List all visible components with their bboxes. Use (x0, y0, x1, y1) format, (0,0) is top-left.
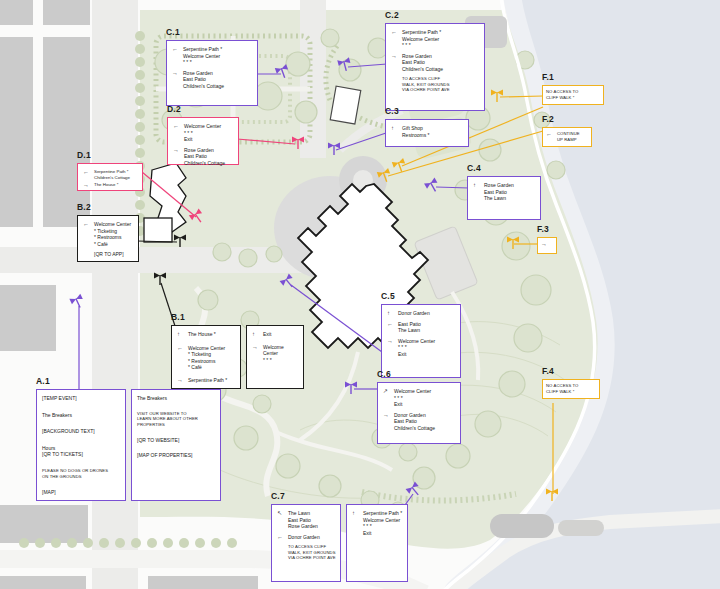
destination-text: The House * (94, 182, 118, 189)
sign-note: NO ACCESS TO CLIFF WALK * (546, 89, 600, 100)
callout-box: ←Welcome Center * * * Exit →Rose Garden … (167, 117, 239, 165)
sign-direction: →Rose Garden East Patio Children's Cotta… (173, 147, 234, 167)
callout-d1: D.1 ←Serpentine Path * Children's Cottag… (77, 150, 143, 191)
sign-note: TO ACCESS CLIFF WALK, EXIT GROUNDS VIA O… (277, 544, 336, 561)
destination-text: Rose Garden East Patio The Lawn (484, 182, 514, 202)
sign-direction: ↑Gift Shop Restrooms * (391, 125, 464, 138)
callout-d2: D.2 ←Welcome Center * * * Exit →Rose Gar… (167, 104, 239, 165)
left-arrow-icon: ← (391, 29, 399, 49)
right-arrow-icon: → (83, 182, 91, 189)
destination-text: Serpentine Path * Welcome Center * * * E… (363, 510, 402, 536)
property-name: The Breakers (42, 412, 121, 419)
parking-structure (490, 514, 554, 538)
callout-c1: C.1 ←Serpentine Path * Welcome Center * … (166, 27, 258, 106)
sign-direction: → (541, 241, 553, 248)
destination-text: Welcome Center * Ticketing * Restrooms *… (94, 221, 131, 247)
callout-box: ↗Welcome Center * * * Exit →Donor Garden… (377, 382, 461, 444)
destination-text: Exit (263, 331, 271, 338)
background-text-slot: [BACKGROUND TEXT] (42, 428, 121, 435)
right-arrow-icon: → (252, 344, 260, 364)
callout-c4: C.4 ↑Rose Garden East Patio The Lawn (467, 163, 541, 220)
destination-text: Rose Garden East Patio Children's Cottag… (184, 147, 225, 167)
up-arrow-icon: ↑ (352, 510, 360, 536)
property-name: The Breakers (137, 395, 216, 402)
sign-direction: ↑Rose Garden East Patio The Lawn (473, 182, 536, 202)
site-map-page: C.1 ←Serpentine Path * Welcome Center * … (0, 0, 720, 589)
sign-direction: →Donor Garden East Patio Children's Cott… (383, 412, 456, 432)
right-arrow-icon: → (173, 147, 181, 167)
callout-id: C.1 (166, 27, 258, 37)
sign-direction: ↑Exit (252, 331, 299, 338)
callout-box: ↑Serpentine Path * Welcome Center * * * … (346, 504, 408, 582)
sign-direction: ←Welcome Center * Ticketing * Restrooms … (83, 221, 134, 247)
entrance-sign-box: [TEMP EVENT] The Breakers [BACKGROUND TE… (36, 389, 126, 501)
destination-text: Gift Shop Restrooms * (402, 125, 430, 138)
spacer (391, 76, 399, 93)
destination-text: The House * (188, 331, 216, 338)
sign-direction: ↖The Lawn East Patio Rose Garden (277, 510, 336, 530)
property-name-text: The Breakers (137, 395, 167, 402)
map-slot: [MAP] (42, 489, 121, 496)
up-right-arrow-icon: ↗ (383, 388, 391, 408)
callout-c6: C.6 ↗Welcome Center * * * Exit →Donor Ga… (377, 369, 461, 444)
sign-direction: ←Welcome Center * Ticketing * Restrooms … (177, 345, 236, 371)
destination-text: East Patio The Lawn (398, 321, 421, 334)
callout-a1: A.1 [TEMP EVENT] The Breakers [BACKGROUN… (36, 376, 221, 501)
callout-id: C.3 (385, 106, 469, 116)
sign-direction: ←Serpentine Path * Welcome Center * * * (391, 29, 480, 49)
destination-text: Rose Garden East Patio Children's Cottag… (183, 70, 224, 90)
destination-text: Serpentine Path * Welcome Center * * * (183, 46, 222, 66)
sign-direction: →Welcome Center * * * (252, 344, 299, 364)
callout-id: B.1 (171, 312, 304, 322)
destination-text: CONTINUE UP RAMP (557, 131, 580, 142)
destination-text: Donor Garden (288, 534, 320, 541)
callout-box: → (537, 237, 557, 254)
callout-id: C.7 (271, 491, 408, 501)
up-arrow-icon: ↑ (391, 125, 399, 138)
up-arrow-icon: ↑ (252, 331, 260, 338)
sign-note: [QR TO APP] (83, 251, 134, 258)
sign-direction: ←Serpentine Path * Children's Cottage (83, 169, 138, 180)
sign-direction: ↑Serpentine Path * Welcome Center * * * … (352, 510, 403, 536)
gift-shop-building (330, 86, 361, 124)
callout-f3: F.3 → (537, 224, 557, 254)
destination-text: Welcome Center * Ticketing * Restrooms *… (188, 345, 225, 371)
qr-website-slot: [QR TO WEBSITE] (137, 437, 216, 444)
sign-note: TO ACCESS CLIFF WALK, EXIT GROUNDS VIA O… (391, 76, 480, 93)
callout-box: ←Serpentine Path * Welcome Center * * * … (385, 23, 485, 111)
up-arrow-icon: ↑ (177, 331, 185, 338)
destination-text: Donor Garden East Patio Children's Cotta… (394, 412, 435, 432)
spacer (277, 544, 285, 561)
right-arrow-icon: → (387, 338, 395, 358)
up-arrow-icon: ↑ (473, 182, 481, 202)
callout-id: C.5 (381, 291, 461, 301)
callout-c5: C.5 ↑Donor Garden ←East Patio The Lawn →… (381, 291, 461, 378)
map-placeholder-text: [MAP OF PROPERTIES] (137, 452, 192, 459)
callout-id: D.1 (77, 150, 143, 160)
callout-box: ↑Exit →Welcome Center * * * (246, 325, 304, 389)
right-arrow-icon: → (541, 241, 549, 248)
callout-box: ↑Rose Garden East Patio The Lawn (467, 176, 541, 220)
sign-direction: →Rose Garden East Patio Children's Cotta… (172, 70, 253, 90)
callout-c2: C.2 ←Serpentine Path * Welcome Center * … (385, 10, 485, 111)
left-arrow-icon: ← (277, 534, 285, 541)
sign-direction: →Welcome Center * * * Exit (387, 338, 456, 358)
callout-c7: C.7 ↖The Lawn East Patio Rose Garden ←Do… (271, 491, 408, 582)
sign-direction: ←Welcome Center * * * Exit (173, 123, 234, 143)
website-sign-box: The Breakers VISIT OUR WEBSITE TO LEARN … (131, 389, 221, 501)
rules-note: PLEASE NO DOGS OR DRONES ON THE GROUNDS (42, 468, 121, 479)
callout-id: F.4 (542, 366, 600, 376)
background-text: [BACKGROUND TEXT] (42, 428, 95, 435)
temp-event-slot: [TEMP EVENT] (42, 395, 121, 402)
rules-text: PLEASE NO DOGS OR DRONES ON THE GROUNDS (42, 468, 108, 479)
callout-box: ↑Gift Shop Restrooms * (385, 119, 469, 147)
destination-text: Welcome Center * * * Exit (184, 123, 221, 143)
destination-text: Donor Garden (398, 310, 430, 317)
callout-f2: F.2 ←CONTINUE UP RAMP (542, 114, 592, 147)
note-text: TO ACCESS CLIFF WALK, EXIT GROUNDS VIA O… (288, 544, 336, 561)
callout-box: ↑Donor Garden ←East Patio The Lawn →Welc… (381, 304, 461, 378)
callout-id: F.1 (542, 72, 604, 82)
destination-text: Welcome Center * * * (263, 344, 299, 364)
sign-direction: ↑Donor Garden (387, 310, 456, 317)
map-properties-slot: [MAP OF PROPERTIES] (137, 452, 216, 459)
up-left-arrow-icon: ↖ (277, 510, 285, 530)
sign-direction: →The House * (83, 182, 138, 189)
destination-text: Welcome Center * * * Exit (398, 338, 435, 358)
callout-f4: F.4 NO ACCESS TO CLIFF WALK * (542, 366, 600, 399)
callout-box: ←CONTINUE UP RAMP (542, 127, 592, 147)
website-note: VISIT OUR WEBSITE TO LEARN MORE ABOUT OT… (137, 411, 216, 428)
map-placeholder-text: [MAP] (42, 489, 56, 496)
callout-id: C.2 (385, 10, 485, 20)
up-arrow-icon: ↑ (387, 310, 395, 317)
note-text: NO ACCESS TO CLIFF WALK * (546, 383, 578, 394)
sign-direction: →Rose Garden East Patio Children's Cotta… (391, 53, 480, 73)
sign-direction: ←Donor Garden (277, 534, 336, 541)
hours-slot: Hours [QR TO TICKETS] (42, 445, 121, 458)
north-road (300, 0, 326, 158)
left-arrow-icon: ← (173, 123, 181, 143)
callout-box: NO ACCESS TO CLIFF WALK * (542, 85, 604, 105)
left-arrow-icon: ← (387, 321, 395, 334)
sign-direction: ←East Patio The Lawn (387, 321, 456, 334)
callout-id: C.4 (467, 163, 541, 173)
callout-box: ←Serpentine Path * Welcome Center * * * … (166, 40, 258, 106)
right-arrow-icon: → (172, 70, 180, 90)
hours-text: Hours [QR TO TICKETS] (42, 445, 83, 458)
left-arrow-icon: ← (83, 169, 91, 180)
sign-direction: ←Serpentine Path * Welcome Center * * * (172, 46, 253, 66)
callout-id: C.6 (377, 369, 461, 379)
destination-text: Welcome Center * * * Exit (394, 388, 431, 408)
callout-b2: B.2 ←Welcome Center * Ticketing * Restro… (77, 202, 139, 262)
destination-text: Rose Garden East Patio Children's Cottag… (402, 53, 443, 73)
callout-f1: F.1 NO ACCESS TO CLIFF WALK * (542, 72, 604, 105)
callout-c3: C.3 ↑Gift Shop Restrooms * (385, 106, 469, 147)
callout-id: A.1 (36, 376, 221, 386)
callout-box: ←Serpentine Path * Children's Cottage →T… (77, 163, 143, 191)
callout-id: F.3 (537, 224, 557, 234)
spacer (83, 251, 91, 258)
callout-id: F.2 (542, 114, 592, 124)
qr-placeholder-text: [QR TO WEBSITE] (137, 437, 179, 444)
note-text: NO ACCESS TO CLIFF WALK * (546, 89, 578, 100)
property-name-text: The Breakers (42, 412, 72, 419)
sign-flag-a1 (69, 294, 85, 310)
qr-placeholder-text: [QR TO APP] (94, 251, 124, 258)
temp-event-text: [TEMP EVENT] (42, 395, 77, 402)
destination-text: The Lawn East Patio Rose Garden (288, 510, 318, 530)
parking-structure (558, 520, 604, 536)
callout-id: D.2 (167, 104, 239, 114)
sign-note: NO ACCESS TO CLIFF WALK * (546, 383, 596, 394)
note-text: TO ACCESS CLIFF WALK, EXIT GROUNDS VIA O… (402, 76, 450, 93)
destination-text: Serpentine Path * Welcome Center * * * (402, 29, 441, 49)
website-note-text: VISIT OUR WEBSITE TO LEARN MORE ABOUT OT… (137, 411, 198, 428)
sign-direction: ↑The House * (177, 331, 236, 338)
left-arrow-icon: ← (177, 345, 185, 371)
sign-direction: ←CONTINUE UP RAMP (546, 131, 588, 142)
destination-text: Serpentine Path * Children's Cottage (94, 169, 130, 180)
callout-box: NO ACCESS TO CLIFF WALK * (542, 379, 600, 399)
right-arrow-icon: → (383, 412, 391, 432)
callout-box: ↖The Lawn East Patio Rose Garden ←Donor … (271, 504, 341, 582)
left-arrow-icon: ← (172, 46, 180, 66)
callout-box: ←Welcome Center * Ticketing * Restrooms … (77, 215, 139, 262)
left-arrow-icon: ← (83, 221, 91, 247)
left-arrow-icon: ← (546, 131, 554, 142)
callout-id: B.2 (77, 202, 139, 212)
right-arrow-icon: → (391, 53, 399, 73)
sign-direction: ↗Welcome Center * * * Exit (383, 388, 456, 408)
